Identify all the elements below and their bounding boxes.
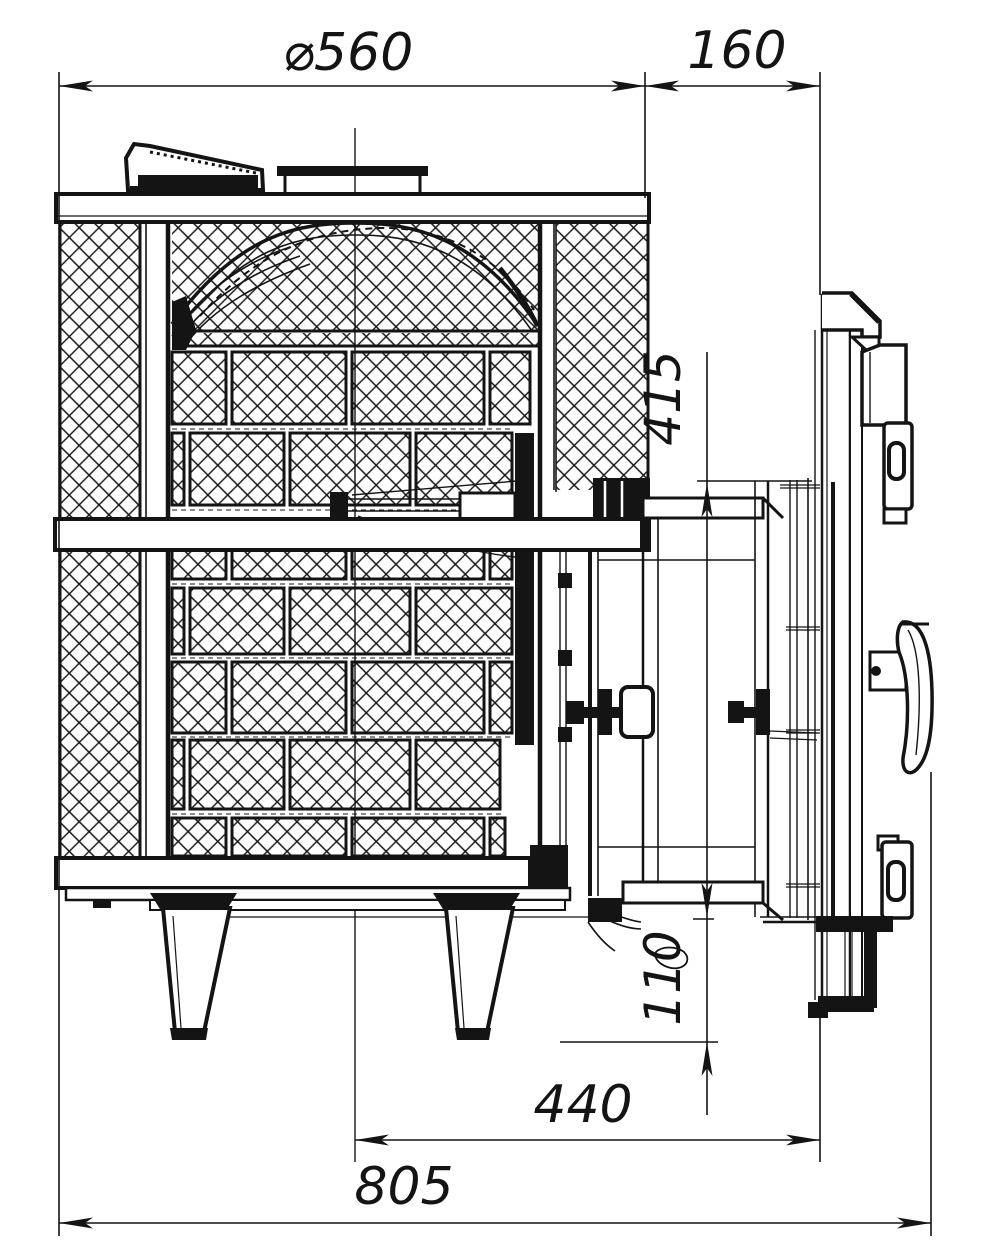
dim-805 (59, 1218, 931, 1229)
hinge-bracket-bottom (878, 836, 912, 918)
base-assembly (66, 888, 605, 1040)
middle-band-end-cap (640, 517, 650, 552)
drawing-sheet: ⌀560 160 415 110 440 805 (0, 0, 999, 1256)
door-handle (870, 622, 932, 773)
dim-text-415: 415 (634, 350, 692, 445)
damper-lever (126, 144, 263, 196)
stove-section-drawing: ⌀560 160 415 110 440 805 (0, 0, 999, 1256)
bottom-band-end-cap (530, 845, 568, 888)
dim-text-805: 805 (354, 1157, 453, 1217)
brick-courses (172, 352, 530, 856)
middle-band (55, 519, 649, 550)
dim-110 (702, 917, 713, 1115)
top-plate (56, 194, 649, 222)
dim-text-160: 160 (687, 21, 786, 81)
dim-text-diameter-560: ⌀560 (283, 23, 414, 83)
dim-415 (702, 352, 713, 917)
door-slab (822, 295, 850, 1010)
firebox-arch (172, 222, 538, 350)
leg-left (150, 893, 237, 1040)
clamp-bolt-outer (728, 689, 817, 740)
fuel-channel-wall (515, 433, 534, 745)
dim-440 (355, 1135, 820, 1146)
chimney-collar (277, 166, 428, 194)
clamp-bolt-inner (566, 687, 653, 737)
dim-text-110: 110 (634, 930, 692, 1025)
outer-door (808, 293, 932, 1018)
leg-right (433, 893, 520, 1040)
bottom-band (56, 858, 530, 888)
dim-text-440: 440 (533, 1075, 632, 1135)
door-outer-layer (850, 330, 862, 1000)
dim-160 (645, 81, 820, 92)
handle-pivot-pin (871, 666, 881, 676)
